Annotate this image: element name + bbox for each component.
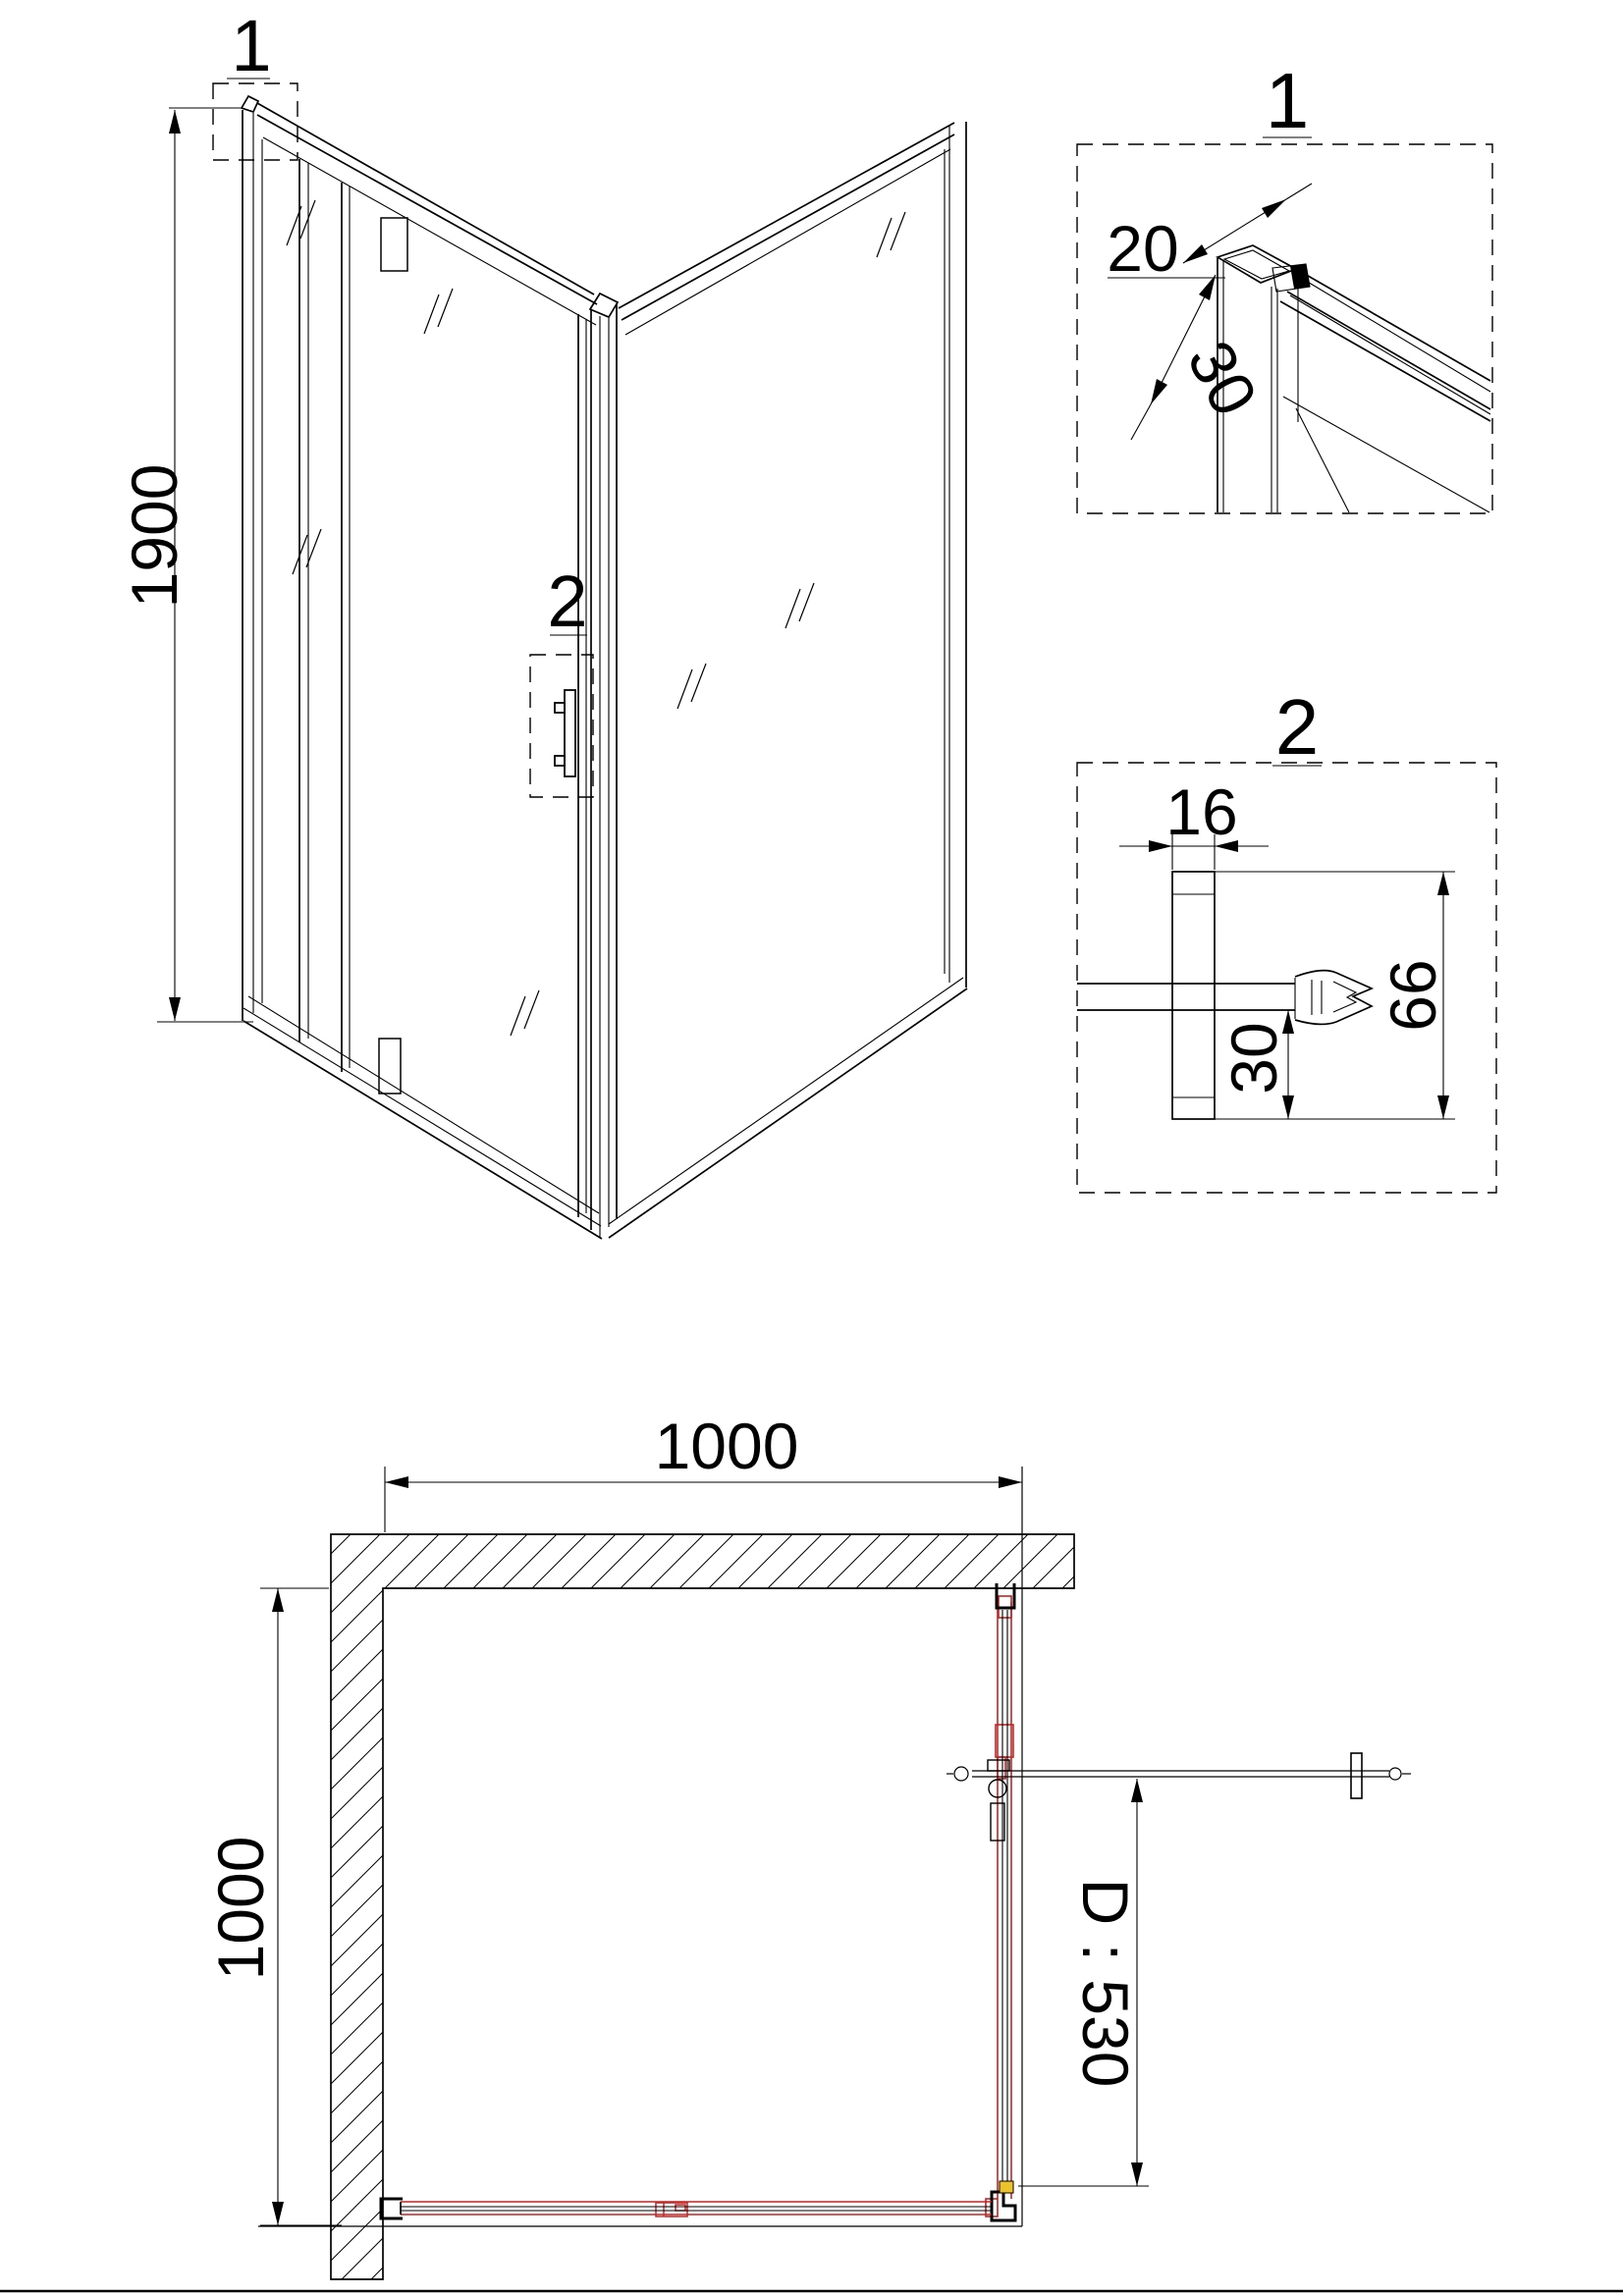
dim-depth-1000: 1000 xyxy=(204,1588,342,2225)
dim-30b-text: 30 xyxy=(1217,1022,1290,1094)
glass-reflection-marks xyxy=(287,200,905,1036)
door-handle xyxy=(555,690,575,776)
dim-width-1000: 1000 xyxy=(385,1410,1022,1532)
callout-1: 1 xyxy=(213,5,298,160)
right-wall xyxy=(609,122,967,1238)
detail-2-view: 2 16 xyxy=(1077,683,1496,1193)
corner-connector-yellow xyxy=(1000,2181,1013,2193)
door-seal-profile xyxy=(1295,971,1372,1025)
dim-20-text: 20 xyxy=(1107,212,1178,285)
detail-1-view: 1 20 xyxy=(1077,57,1492,513)
detail-2-glass-and-seal xyxy=(1077,971,1372,1025)
left-wall-bracket xyxy=(381,2199,403,2218)
callout-2-label: 2 xyxy=(547,561,587,642)
dim-16-text: 16 xyxy=(1165,775,1237,848)
detail-1-dim-20: 20 xyxy=(1107,184,1312,285)
dim-door-530: D : 530 xyxy=(1018,1779,1149,2186)
dim-door-text: D : 530 xyxy=(1069,1879,1142,2088)
pivot-door xyxy=(299,159,586,1217)
plan-door-handle xyxy=(1351,1753,1362,1798)
detail-2-title: 2 xyxy=(1275,683,1320,771)
corner-post-cap xyxy=(590,294,618,317)
panel-profiles-red xyxy=(986,1596,1013,2216)
detail-1-title: 1 xyxy=(1266,57,1310,144)
dim-depth-text: 1000 xyxy=(204,1837,277,1981)
dim-1900-text: 1900 xyxy=(118,464,190,609)
walls-hatched xyxy=(331,1534,1074,2279)
detail-2-dim-30: 30 xyxy=(1215,1010,1300,1119)
drawing-sheet: 1 2 1900 1 xyxy=(0,0,1623,2296)
detail-1-dim-30: 30 xyxy=(1131,275,1271,440)
arrow-down xyxy=(169,997,181,1021)
rail-red-lines xyxy=(401,2202,992,2216)
detail-2-dim-16: 16 xyxy=(1119,775,1269,870)
left-wall-frame xyxy=(242,96,602,1239)
top-hinge-block xyxy=(381,218,407,271)
dim-66-text: 66 xyxy=(1377,959,1449,1031)
plan-bottom-rail xyxy=(381,2199,992,2218)
perspective-view: 1 2 1900 xyxy=(118,5,967,1239)
plan-open-door xyxy=(947,1753,1411,1798)
bottom-hinge-block xyxy=(379,1039,401,1094)
plan-fixed-panel xyxy=(986,1583,1015,2220)
dim-30-text: 30 xyxy=(1173,329,1271,427)
arrow-up xyxy=(169,110,181,133)
detail-2-wall-profile xyxy=(1172,872,1215,1119)
plan-view: 1000 1000 D : 530 xyxy=(204,1410,1411,2279)
dim-height-1900: 1900 xyxy=(118,108,253,1022)
left-frame-top-cap xyxy=(242,96,258,112)
shower-enclosure-technical-drawing: 1 2 1900 1 xyxy=(0,0,1623,2296)
callout-1-label: 1 xyxy=(231,5,271,86)
callout-2: 2 xyxy=(530,561,593,797)
dim-width-text: 1000 xyxy=(655,1410,799,1482)
corner-post xyxy=(590,294,618,1237)
